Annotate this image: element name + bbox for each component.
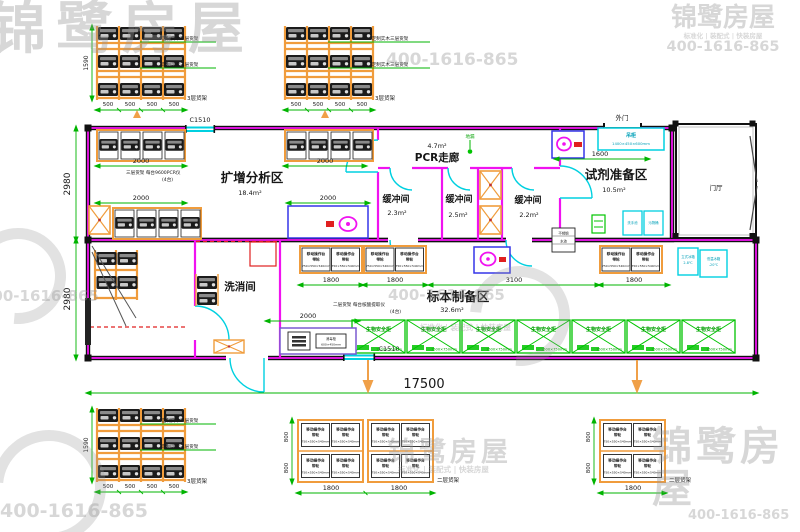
extractor-note: 二层货架 每台核酸提取仪 — [333, 301, 385, 308]
rack-annotation: 定制实木三层货架 — [162, 61, 199, 68]
room-reagent: 吊柜 1400×450×600mm 1600 试剂准备区 10.5m² 洗手池 … — [552, 128, 664, 252]
washing-column-rack — [196, 274, 218, 306]
hand-wash-station — [592, 215, 605, 233]
entrance-arrow-icon — [633, 360, 641, 391]
room-label-washing: 洗消间 — [224, 280, 256, 293]
sterilizer-label: 消毒柜 — [326, 336, 337, 341]
sink-box: 不锈钢 水池 — [552, 228, 575, 252]
room-label-buffer3: 缓冲间 — [514, 194, 541, 206]
rack-annotation: 定制实木三层货架 — [162, 443, 199, 450]
centrifuge-box — [288, 206, 368, 238]
wall-cabinet — [598, 128, 664, 150]
centrifuge-box — [552, 131, 584, 158]
dim-2980-bottom: 2980 — [63, 287, 73, 310]
rack-annotation: 定制实木三层货架 — [162, 35, 199, 42]
fridge1-temp: 2-8℃ — [683, 261, 693, 265]
dim-1590: 1590 — [83, 437, 90, 452]
room-area-buffer2: 2.5m² — [448, 211, 468, 219]
fridge2-label: 低温冰箱 — [707, 256, 721, 261]
room-label-amplification: 扩增分析区 — [221, 170, 284, 185]
door-arc — [195, 306, 229, 340]
stair-hatch — [85, 298, 91, 345]
room-amplification: 2000 2000 2000 2000 三层货架 每台9600PCR仪 (4台)… — [89, 130, 373, 239]
red-pass-box — [250, 242, 276, 266]
room-label-corridor: PCR走廊 — [415, 151, 460, 164]
centrifuge-box — [474, 247, 510, 273]
drain-label: 地漏 — [466, 133, 475, 140]
rack-annotation: 定制实木三层货架 — [372, 35, 409, 42]
window-code-top: C1510 — [189, 116, 210, 124]
shelf3-label: 3层货架 — [187, 94, 207, 102]
pcr-machine-note2: (4台) — [162, 176, 173, 183]
dim-1800: 1800 — [323, 484, 340, 492]
dim-17500: 17500 — [403, 377, 444, 392]
room-washing: 洗消间 — [85, 242, 280, 354]
sterilizer-box: 消毒柜 600×450mm — [280, 328, 356, 354]
shelf-group-middle: 800 800 1800 1800 二层货架 — [284, 420, 460, 495]
basin-label: 洗手池 — [627, 220, 638, 225]
room-label-buffer2: 缓冲间 — [445, 193, 472, 205]
dim-1600: 1600 — [592, 150, 609, 158]
door-arc — [448, 168, 470, 190]
dim-1590: 1590 — [83, 55, 90, 70]
shelf2-label: 二层货架 — [437, 476, 460, 484]
dim-800: 800 — [586, 431, 592, 442]
dim-2000: 2000 — [320, 194, 337, 202]
fridge1-label: 立式冰箱 — [681, 254, 695, 259]
dim-800: 800 — [284, 462, 290, 473]
rack-annotation: 定制实木三层货架 — [162, 417, 199, 424]
rack-top-right: 定制实木三层货架 定制实木三层货架 3层货架 — [285, 26, 430, 118]
room-area-specimen: 32.6m² — [440, 306, 464, 314]
room-area-buffer3: 2.2m² — [519, 211, 539, 219]
dim-800: 800 — [284, 431, 290, 442]
room-area-reagent: 10.5m² — [602, 186, 626, 194]
room-label-reagent: 试剂准备区 — [585, 167, 648, 182]
door-arc — [390, 168, 412, 190]
dim-1800: 1800 — [323, 276, 340, 284]
room-label-buffer1: 缓冲间 — [382, 193, 409, 205]
floor-drain-icon: 地漏 — [466, 133, 475, 154]
dim-2000: 2000 — [300, 312, 317, 320]
shelf2-label: 二层货架 — [669, 476, 692, 484]
pcr-machine-note: 三层货架 每台9600PCR仪 — [126, 169, 181, 176]
cad-floorplan-canvas: 移动操作台 带轮 750×550×540mm 生物安全柜 1500×750mm — [0, 0, 800, 532]
room-specimen: 1800 1800 3100 1800 标本制备区 32.6m² 二层货架 每台… — [267, 246, 735, 354]
dim-2980-top: 2980 — [63, 172, 73, 195]
dim-1800: 1800 — [387, 276, 404, 284]
rack-annotation: 定制实木三层货架 — [372, 61, 409, 68]
shelf3-label: 3层货架 — [375, 94, 395, 102]
sterilizer-size: 600×450mm — [321, 343, 341, 347]
cabinet-label: 吊柜 — [626, 132, 636, 139]
dim-1800: 1800 — [626, 276, 643, 284]
room-area-corridor: 4.7m² — [427, 142, 447, 150]
room-corridor: 4.7m² PCR走廊 地漏 — [415, 133, 475, 164]
dim-3100: 3100 — [506, 276, 523, 284]
rack-pointer-arrow-icon — [133, 110, 141, 118]
shelf-group-right: 800 800 1800 二层货架 — [586, 420, 692, 493]
rack-pointer-arrow-icon — [321, 110, 329, 118]
dim-2000: 2000 — [133, 157, 150, 165]
fridge2-temp: -20℃ — [709, 263, 719, 267]
dim-1800: 1800 — [625, 484, 642, 492]
cabinet-size: 1400×450×600mm — [612, 141, 650, 146]
room-label-specimen: 标本制备区 — [426, 289, 490, 304]
dim-2000: 2000 — [133, 194, 150, 202]
extractor-note2: (4台) — [390, 308, 401, 315]
shelf3-label: 3层货架 — [187, 477, 207, 485]
door-arc — [230, 358, 264, 392]
outer-door-label: 外门 — [616, 113, 629, 122]
bin-label: 污物桶 — [648, 220, 659, 225]
dim-800: 800 — [586, 462, 592, 473]
room-label-entry: 门厅 — [710, 183, 724, 192]
washer-rack — [95, 250, 138, 300]
rack-bottom-left: 1590 定制实木三层货架 定制实木三层货架 3层货架 — [83, 408, 216, 494]
door-arc — [512, 168, 534, 190]
buffer-rooms: 缓冲间 2.3m² 缓冲间 2.5m² 缓冲间 2.2m² — [382, 171, 541, 234]
rack-top-left: 1590 定制实木三层货架 定制实木三层货架 3层货架 — [83, 26, 216, 118]
entrance-arrow-icon — [364, 360, 372, 391]
room-area-amplification: 18.4m² — [238, 189, 262, 197]
sink-label1: 不锈钢 — [558, 231, 569, 236]
floorplan-drawing: 移动操作台 带轮 750×550×540mm 生物安全柜 1500×750mm — [0, 0, 800, 532]
dim-2000: 2000 — [317, 157, 334, 165]
room-area-buffer1: 2.3m² — [387, 209, 407, 217]
dim-1800: 1800 — [391, 484, 408, 492]
sink-label2: 水池 — [560, 239, 567, 244]
